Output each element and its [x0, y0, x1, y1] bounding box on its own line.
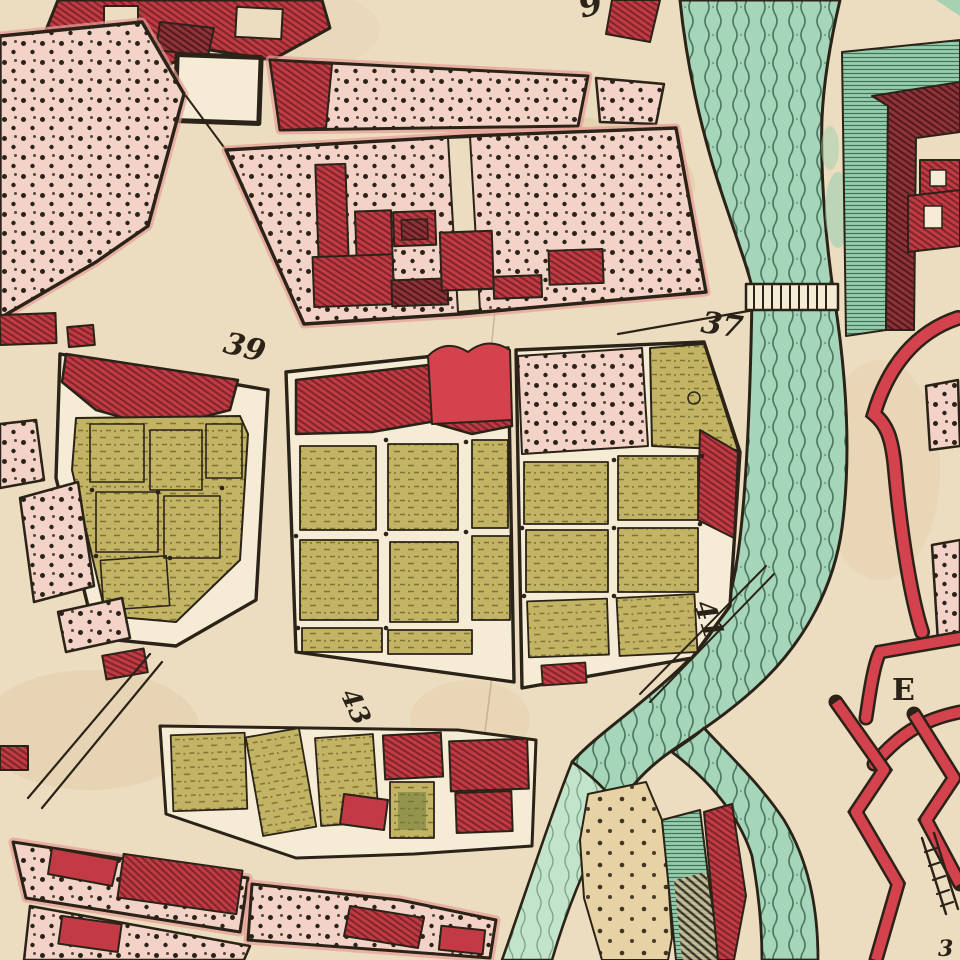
garden-plot — [527, 599, 609, 658]
building-red — [0, 746, 28, 770]
stippled-block — [0, 420, 44, 488]
stippled-block — [932, 540, 960, 642]
building-dark — [156, 22, 214, 56]
garden-plot — [526, 530, 608, 592]
building-red — [315, 164, 349, 267]
garden-plot — [472, 536, 510, 620]
garden-plot — [618, 528, 698, 592]
building-red — [449, 739, 529, 792]
garden-plot — [388, 444, 458, 530]
building-red — [455, 791, 512, 833]
bridge — [746, 284, 838, 310]
courtyard — [930, 170, 946, 186]
building-blob-red — [428, 343, 512, 424]
garden-plot — [472, 440, 508, 528]
courtyard — [235, 7, 283, 39]
building-red — [439, 926, 485, 954]
garden-plot — [302, 628, 382, 652]
garden-plot — [300, 540, 378, 620]
stippled-block — [596, 78, 664, 124]
city-block-39 — [56, 354, 268, 646]
garden-plot — [618, 456, 698, 520]
garden-dark-rows — [398, 792, 426, 830]
building-red — [0, 313, 57, 345]
battery-red — [606, 0, 660, 42]
city-block-central-gardens — [286, 343, 514, 682]
stippled-block — [518, 348, 648, 454]
building-red — [548, 249, 603, 285]
building-red — [270, 60, 332, 130]
building-red — [383, 733, 443, 780]
stippled-block — [926, 380, 960, 450]
antique-city-map: 39 37 41 43 E 9 3 — [0, 0, 960, 960]
sandbank-island — [580, 782, 672, 960]
garden-plot — [171, 733, 248, 812]
building-dark — [391, 278, 448, 306]
label-E: E — [892, 673, 915, 708]
garden-plot — [524, 462, 608, 524]
building-red — [541, 662, 586, 685]
building-dark — [401, 219, 428, 240]
garden-plot — [390, 542, 458, 622]
building-red — [440, 231, 494, 291]
building-red — [493, 275, 542, 299]
building-red — [313, 254, 395, 307]
building-blob-red — [340, 794, 388, 830]
label-corner-partial: 3 — [938, 936, 953, 960]
label-37: 37 — [699, 305, 745, 345]
walled-court — [175, 55, 261, 124]
building-red — [67, 325, 95, 347]
garden-plot — [388, 630, 472, 654]
courtyard — [924, 206, 942, 228]
riverbank-green — [821, 126, 839, 170]
garden-plot — [300, 446, 376, 530]
map-canvas: 39 37 41 43 E 9 3 — [0, 0, 960, 960]
